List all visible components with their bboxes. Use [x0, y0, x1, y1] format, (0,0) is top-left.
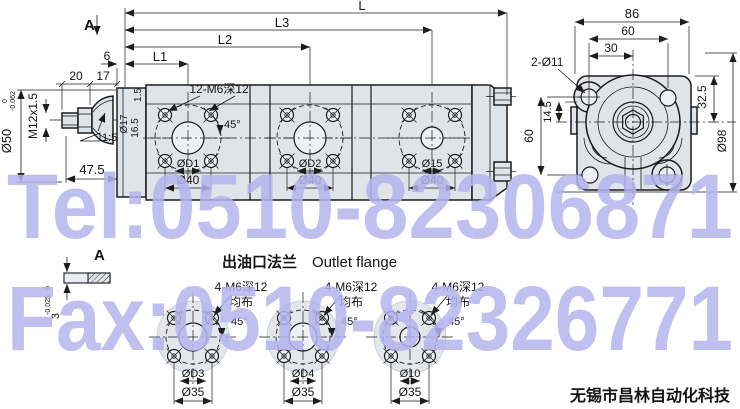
- dim-6: 6: [104, 49, 111, 63]
- dim-shaft-tol-lo: -0.062: [10, 91, 17, 111]
- right-tab: [691, 107, 697, 134]
- hex-fitting-top: [494, 88, 511, 105]
- dim-L2: L2: [218, 32, 232, 47]
- flange2-pitch: Ø35: [292, 385, 315, 399]
- dim-17: 17: [96, 69, 110, 83]
- dim-60-top: 60: [621, 24, 635, 38]
- dim-L1: L1: [153, 49, 167, 64]
- dim-shaft-dia: Ø50: [0, 129, 14, 154]
- left-tab: [571, 107, 577, 134]
- label-bolt-note-12m6: 12-M6深12: [189, 82, 249, 96]
- dim-20: 20: [69, 69, 83, 83]
- dim-30: 30: [604, 41, 618, 55]
- dim-60-left: 60: [522, 129, 536, 143]
- label-taper: 1:5: [102, 132, 117, 144]
- label-section-a-top: A: [84, 17, 95, 34]
- dim-shaft-tol-hi: 0: [2, 99, 9, 103]
- dim-L3: L3: [275, 15, 289, 30]
- drawing-canvas: A 1.5 Ø17 16.5: [0, 0, 740, 409]
- dim-bore-17: Ø17: [119, 114, 130, 133]
- label-mount-holes: 2-Ø11: [531, 55, 564, 69]
- watermark-fax: Fax:0510-82326771: [7, 268, 733, 370]
- watermark-tel: Tel:0510-82306871: [7, 156, 733, 258]
- pump-technical-drawing: A 1.5 Ø17 16.5: [0, 0, 740, 409]
- dim-98: Ø98: [715, 129, 729, 152]
- label-angle-45-side: 45°: [224, 119, 241, 131]
- flange3-pitch: Ø35: [399, 385, 422, 399]
- company-name: 无锡市昌林自动化科技: [569, 386, 731, 405]
- dim-plate-1-5: 1.5: [133, 88, 144, 102]
- dim-L: L: [358, 0, 365, 13]
- label-thread: M12x1.5: [26, 93, 40, 139]
- dim-32-5: 32.5: [695, 85, 709, 109]
- dim-14-5: 14.5: [542, 101, 554, 122]
- flange1-pitch: Ø35: [182, 385, 205, 399]
- dim-86: 86: [625, 6, 639, 21]
- dim-depth-16-5: 16.5: [130, 118, 141, 138]
